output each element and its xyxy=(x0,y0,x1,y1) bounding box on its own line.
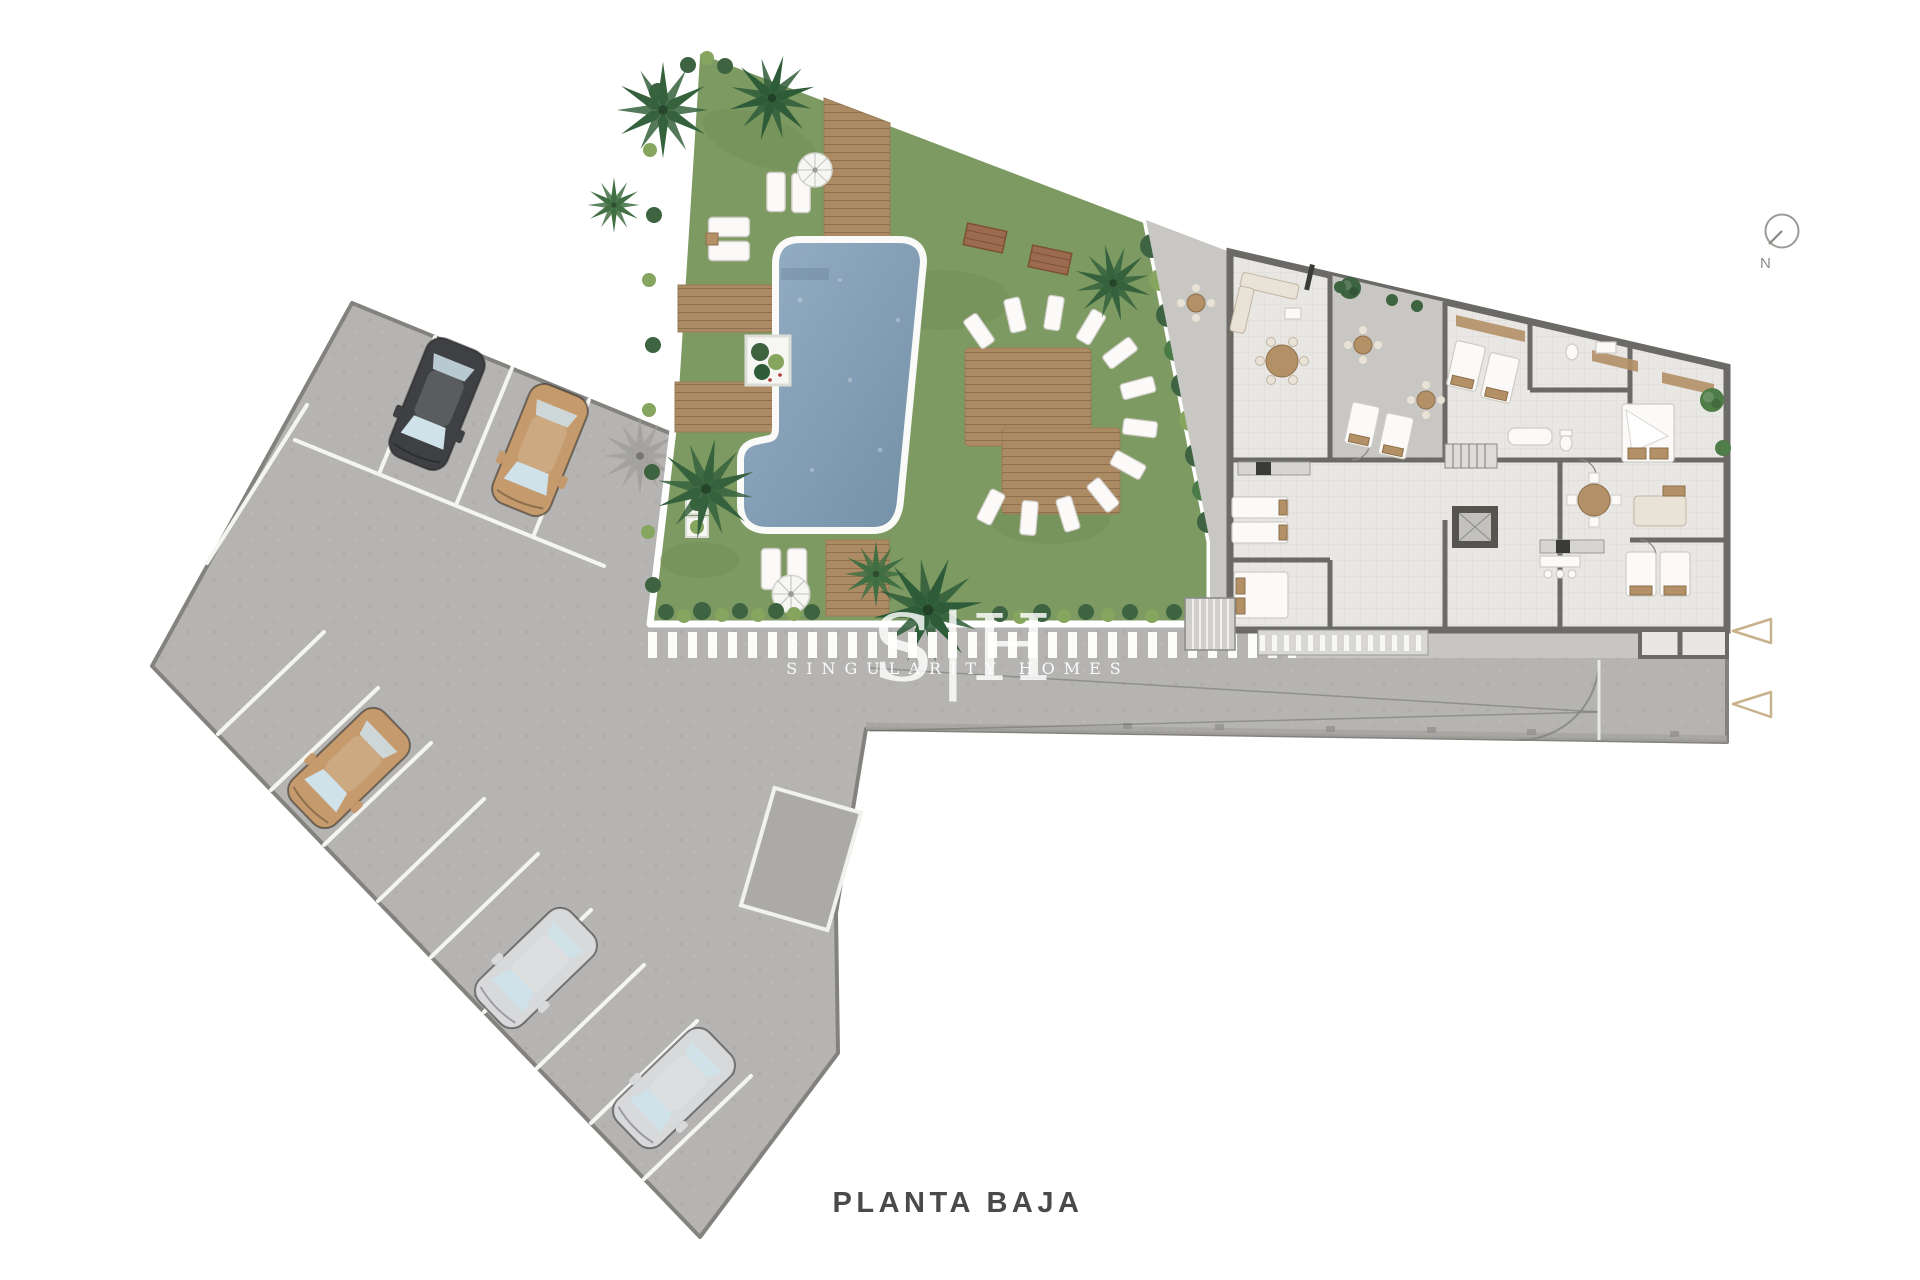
compass-needle-icon xyxy=(1769,231,1782,244)
planter-box xyxy=(746,336,790,385)
console-table xyxy=(1663,486,1685,496)
floor-plan-svg: S|H SINGULARITY HOMES N PLANTA BAJA xyxy=(0,0,1920,1280)
entrance-stair xyxy=(1185,598,1235,650)
stairs xyxy=(1445,444,1497,468)
entrance-arrow-icon xyxy=(1733,692,1771,717)
north-compass: N xyxy=(1760,215,1799,273)
compass-label: N xyxy=(1760,255,1771,272)
side-table xyxy=(706,233,718,245)
kitchen-counter xyxy=(1238,462,1310,475)
building-area xyxy=(1146,220,1731,658)
watermark-initials: S|H xyxy=(871,595,1054,702)
site-plan-canvas: S|H SINGULARITY HOMES N PLANTA BAJA xyxy=(0,0,1920,1280)
entrance-arrow-icon xyxy=(1733,619,1771,643)
dining-table xyxy=(1578,484,1610,516)
bedroom-master xyxy=(1622,404,1674,462)
building-annex xyxy=(1640,630,1727,657)
bedroom-left-bottom xyxy=(1234,572,1288,618)
tree xyxy=(1700,388,1724,412)
dining-table xyxy=(1266,345,1298,377)
entrance-steps xyxy=(1258,630,1428,655)
watermark-name: SINGULARITY HOMES xyxy=(786,659,1130,678)
garden-area xyxy=(588,45,1219,681)
coffee-table xyxy=(1285,308,1301,319)
stove xyxy=(1256,462,1271,475)
page-title: PLANTA BAJA xyxy=(833,1187,1084,1219)
elevator xyxy=(1452,506,1498,548)
entrance-arrows xyxy=(1733,619,1771,717)
sofa xyxy=(1634,496,1686,526)
